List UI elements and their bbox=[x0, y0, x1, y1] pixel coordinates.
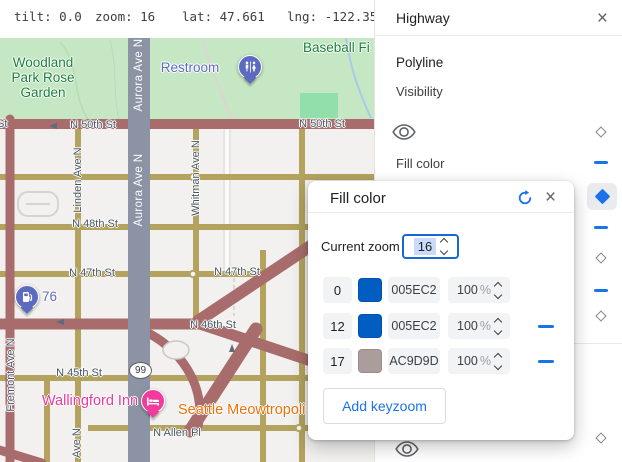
keyframe-diamond-2[interactable] bbox=[595, 252, 606, 263]
filled-diamond-icon bbox=[594, 189, 610, 205]
street-label-n50th-west: N 50th St bbox=[60, 119, 126, 131]
street-label-whitman: Whitman Ave N bbox=[190, 140, 202, 216]
opacity-stepper[interactable]: 100% bbox=[448, 313, 510, 339]
visibility-label: Visibility bbox=[396, 84, 443, 99]
lat-readout: lat: 47.661 bbox=[182, 9, 265, 24]
poi-label-wallingford-inn: Wallingford Inn bbox=[30, 393, 150, 409]
keyzoom-level-field[interactable]: 12 bbox=[323, 313, 352, 339]
street-label-allen-pl: N Allen Pl bbox=[144, 427, 210, 439]
street-label-n50th-east: N 50th St bbox=[289, 118, 355, 130]
hex-color-field[interactable]: 005EC2 bbox=[388, 313, 440, 339]
bed-icon bbox=[146, 396, 160, 407]
fill-color-label: Fill color bbox=[396, 156, 444, 171]
keyframe-diamond-3[interactable] bbox=[595, 310, 606, 321]
street-label-aurora-north: Aurora Ave N bbox=[133, 39, 145, 112]
park-label-woodland: Woodland Park Rose Garden bbox=[8, 55, 78, 100]
keyzoom-row-0: 0 005EC2 100% bbox=[308, 277, 574, 303]
hex-color-field[interactable]: 005EC2 bbox=[388, 277, 440, 303]
keyzoom-level-field[interactable]: 17 bbox=[323, 348, 352, 374]
color-swatch[interactable] bbox=[358, 349, 382, 373]
keyframe-selected-marker[interactable] bbox=[587, 183, 617, 210]
gas-station-pin[interactable] bbox=[15, 285, 39, 309]
stepper-chevrons[interactable] bbox=[495, 319, 501, 334]
street-label-n47th-west: N 47th St bbox=[59, 267, 125, 279]
color-swatch[interactable] bbox=[358, 314, 382, 338]
tilt-readout: tilt: 0.0 bbox=[14, 9, 82, 24]
dialog-title: Fill color bbox=[330, 190, 386, 207]
street-label-n46th: N 46th St bbox=[180, 319, 246, 331]
poi-label-76-station: 76 bbox=[42, 289, 57, 304]
style-editor-window: tilt: 0.0 zoom: 16 lat: 47.661 lng: -122… bbox=[0, 0, 622, 462]
stepper-chevrons[interactable] bbox=[441, 239, 447, 254]
poi-label-restroom: Restroom bbox=[150, 60, 230, 75]
street-label-n45th: N 45th St bbox=[46, 367, 112, 379]
color-swatch[interactable] bbox=[358, 278, 382, 302]
stepper-chevrons[interactable] bbox=[495, 283, 501, 298]
restroom-pin[interactable] bbox=[238, 55, 262, 79]
keyzoom-row-17: 17 AC9D9D 100% bbox=[308, 348, 574, 374]
keyframe-diamond-visibility[interactable] bbox=[595, 126, 606, 137]
keyframe-dash-2[interactable] bbox=[594, 226, 608, 229]
route-99-number: 99 bbox=[135, 365, 146, 376]
remove-keyzoom-button[interactable] bbox=[538, 360, 554, 363]
percent-sign: % bbox=[480, 283, 491, 297]
visibility-eye-icon[interactable] bbox=[392, 123, 416, 141]
reset-refresh-icon[interactable] bbox=[517, 190, 533, 206]
section-heading-polyline: Polyline bbox=[396, 55, 443, 70]
dialog-close-icon[interactable]: × bbox=[545, 188, 556, 207]
street-label-n47th-east: N 47th St bbox=[204, 266, 270, 278]
opacity-value: 100 bbox=[457, 354, 478, 368]
hex-color-field[interactable]: AC9D9D bbox=[388, 348, 440, 374]
restroom-icon bbox=[244, 61, 257, 73]
fuel-pump-icon bbox=[21, 291, 33, 303]
percent-sign: % bbox=[480, 319, 491, 333]
keyzoom-level-field[interactable]: 0 bbox=[323, 277, 352, 303]
style-panel-header: Highway × bbox=[375, 0, 622, 36]
current-zoom-value[interactable]: 16 bbox=[414, 238, 436, 255]
panel-close-icon[interactable]: × bbox=[597, 9, 608, 28]
percent-sign: % bbox=[480, 354, 491, 368]
park-label-baseball-field: Baseball Fi bbox=[303, 40, 370, 55]
stepper-chevrons[interactable] bbox=[495, 354, 501, 369]
street-label-aurora-south: Aurora Ave N bbox=[133, 154, 145, 227]
keyframe-dash-fill-color[interactable] bbox=[594, 161, 608, 164]
zoom-readout: zoom: 16 bbox=[95, 9, 155, 24]
fill-color-dialog: Fill color × Current zoom 16 0 005EC2 10… bbox=[308, 181, 574, 440]
street-label-st-fragment: St bbox=[0, 118, 7, 130]
lng-readout: lng: -122.356 bbox=[287, 9, 385, 24]
dialog-divider bbox=[308, 212, 574, 213]
poi-label-cat-cafe: Seattle Meowtropoli bbox=[178, 402, 305, 418]
opacity-stepper[interactable]: 100% bbox=[448, 348, 510, 374]
opacity-stepper[interactable]: 100% bbox=[448, 277, 510, 303]
keyframe-diamond-bottom[interactable] bbox=[595, 432, 606, 443]
street-label-fremont: Fremont Ave N bbox=[5, 338, 17, 411]
street-label-linden: Linden Ave N bbox=[72, 147, 84, 212]
park-label-line1: Woodland bbox=[8, 55, 78, 70]
hotel-pin[interactable] bbox=[141, 389, 165, 413]
park-label-line2: Park Rose bbox=[8, 70, 78, 85]
street-label-ave-n-fragment: Ave N bbox=[71, 428, 83, 458]
remove-keyzoom-button[interactable] bbox=[538, 325, 554, 328]
visibility-eye-icon-bottom[interactable] bbox=[395, 440, 419, 458]
map-status-bar: tilt: 0.0 zoom: 16 lat: 47.661 lng: -122… bbox=[0, 0, 374, 38]
keyframe-dash-3[interactable] bbox=[594, 289, 608, 292]
route-99-shield: 99 bbox=[129, 362, 152, 379]
current-zoom-stepper[interactable]: 16 bbox=[402, 234, 459, 259]
opacity-value: 100 bbox=[457, 319, 478, 333]
keyzoom-row-12: 12 005EC2 100% bbox=[308, 313, 574, 339]
opacity-value: 100 bbox=[457, 283, 478, 297]
add-keyzoom-button[interactable]: Add keyzoom bbox=[323, 388, 446, 424]
current-zoom-label: Current zoom bbox=[321, 239, 400, 254]
street-label-n48th: N 48th St bbox=[62, 218, 128, 230]
park-label-line3: Garden bbox=[8, 85, 78, 100]
panel-title: Highway bbox=[396, 10, 450, 26]
